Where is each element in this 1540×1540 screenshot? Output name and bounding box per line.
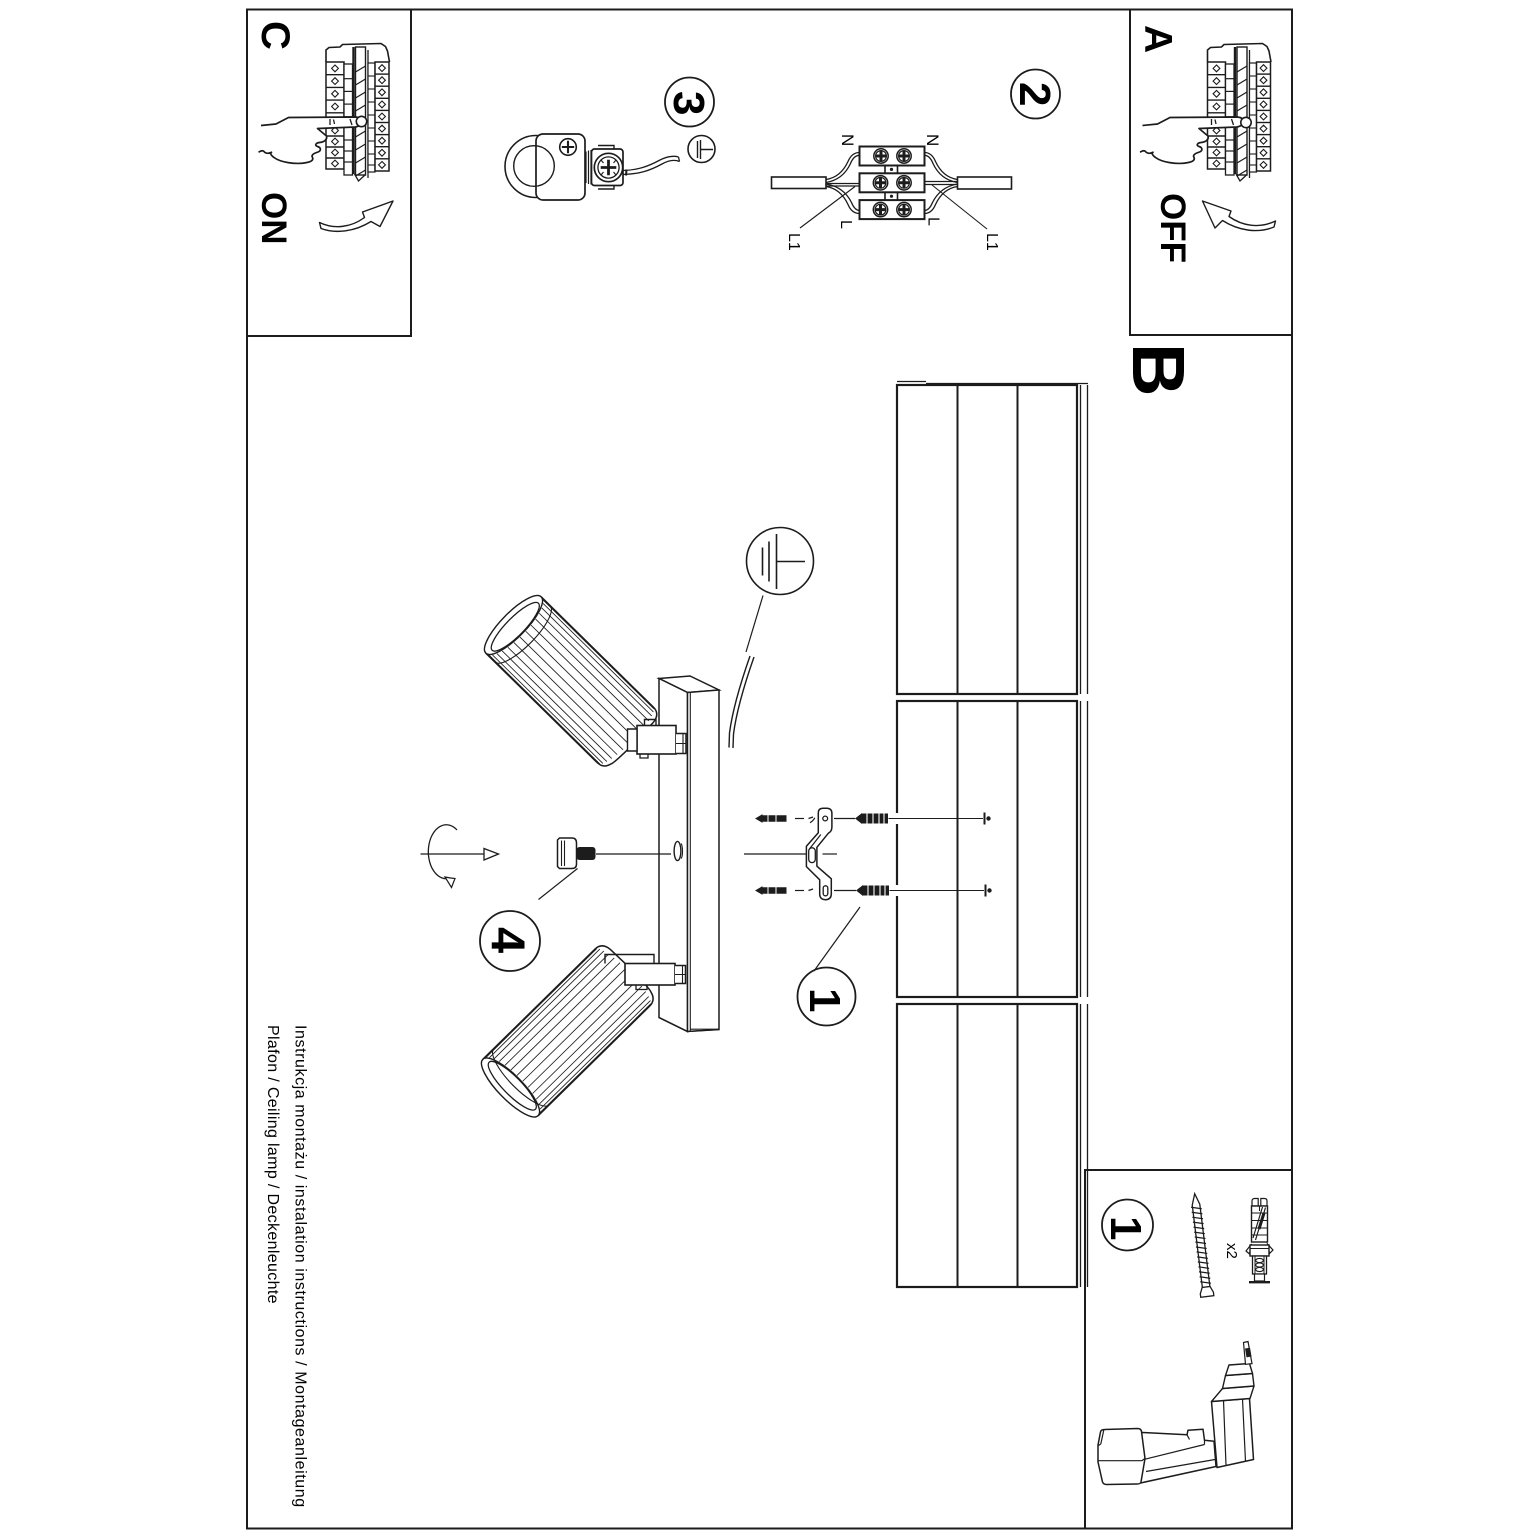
svg-text:L: L: [925, 217, 942, 226]
svg-text:A: A: [1136, 25, 1179, 53]
svg-text:Plafon / Ceiling lamp / Decken: Plafon / Ceiling lamp / Deckenleuchte: [264, 1025, 281, 1304]
svg-text:x2: x2: [1223, 1243, 1240, 1259]
svg-text:L1: L1: [983, 233, 1000, 251]
svg-text:C: C: [253, 21, 297, 50]
svg-text:3: 3: [664, 91, 713, 115]
svg-text:1: 1: [1101, 1216, 1150, 1240]
svg-text:N: N: [838, 134, 857, 146]
svg-text:B: B: [1117, 343, 1200, 396]
svg-text:4: 4: [482, 927, 535, 953]
svg-text:Instrukcja montażu / instalati: Instrukcja montażu / instalation instruc…: [292, 1025, 309, 1508]
svg-text:2: 2: [1010, 82, 1059, 106]
svg-text:N: N: [923, 134, 942, 146]
svg-text:ON: ON: [254, 192, 293, 245]
svg-text:L: L: [837, 220, 854, 229]
svg-text:1: 1: [800, 988, 849, 1012]
svg-text:OFF: OFF: [1153, 193, 1192, 263]
svg-text:L1: L1: [785, 233, 802, 251]
